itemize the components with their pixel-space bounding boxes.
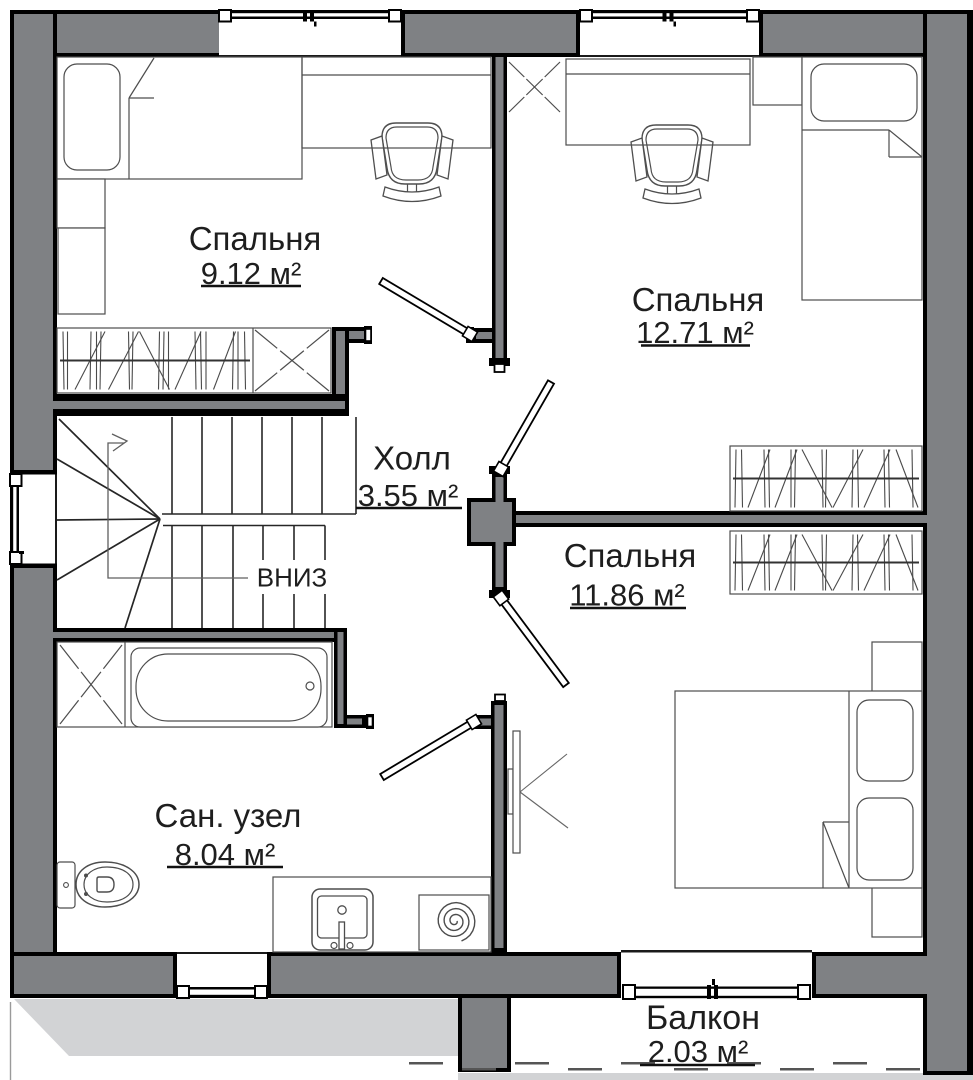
svg-text:Балкон: Балкон xyxy=(646,999,760,1037)
svg-text:2.03 м²: 2.03 м² xyxy=(648,1034,749,1069)
svg-text:Спальня: Спальня xyxy=(564,537,697,574)
svg-text:ВНИЗ: ВНИЗ xyxy=(257,563,328,593)
svg-text:Спальня: Спальня xyxy=(189,220,322,257)
svg-text:Сан. узел: Сан. узел xyxy=(155,797,302,834)
svg-text:Спальня: Спальня xyxy=(632,281,765,318)
svg-text:Холл: Холл xyxy=(373,440,451,477)
